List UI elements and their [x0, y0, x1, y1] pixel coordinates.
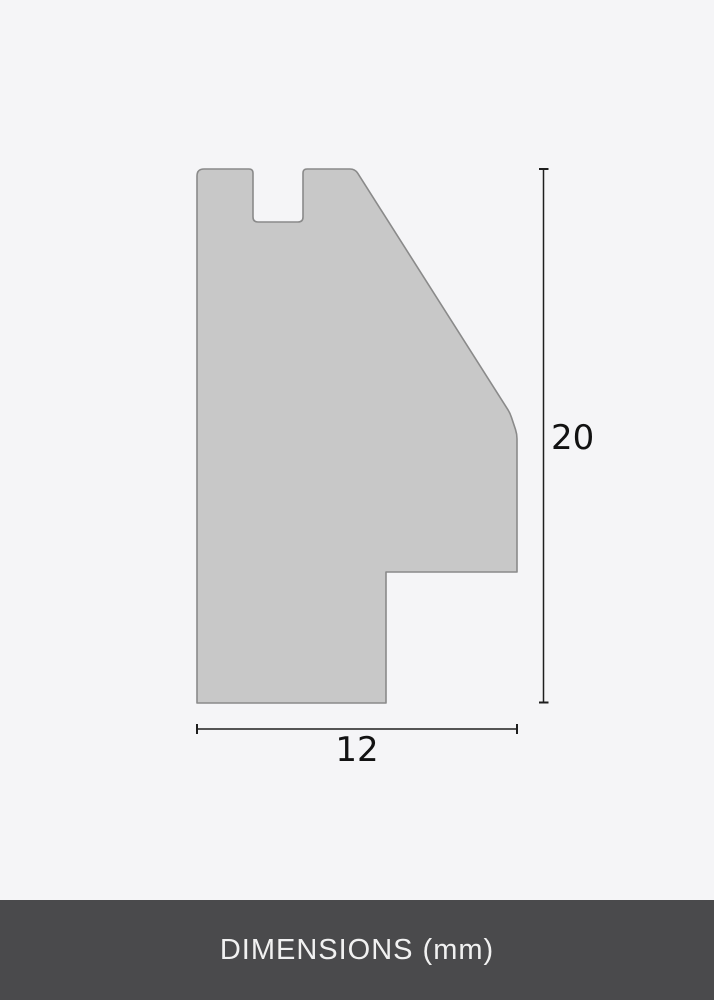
footer-bar: DIMENSIONS (mm)	[0, 900, 714, 1000]
frame-profile-diagram-page: 20 12 DIMENSIONS (mm)	[0, 0, 714, 1000]
moulding-profile-shape	[197, 169, 517, 703]
width-dimension: 12	[197, 724, 517, 770]
height-dimension: 20	[539, 169, 594, 703]
width-dimension-value: 12	[335, 730, 378, 770]
profile-cross-section-svg: 20 12	[0, 0, 714, 900]
footer-label: DIMENSIONS (mm)	[220, 934, 494, 967]
height-dimension-value: 20	[551, 418, 594, 458]
